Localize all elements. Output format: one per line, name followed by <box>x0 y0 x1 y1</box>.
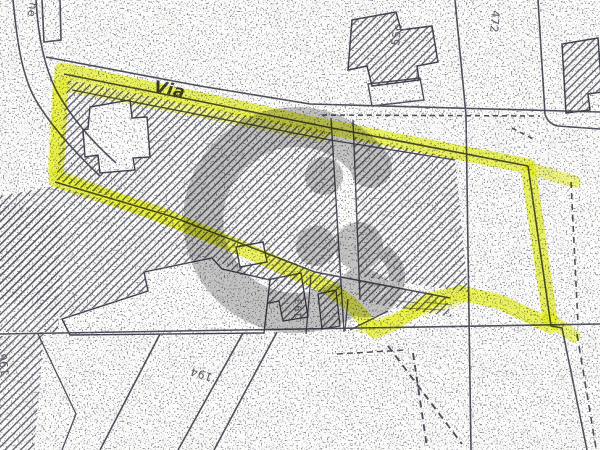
highlighter-left-fill <box>53 84 58 170</box>
map-canvas: Via 472 55c 193 194 196 ne <box>0 0 600 450</box>
scanned-cadastral-map: Via 472 55c 193 194 196 ne <box>0 0 600 450</box>
scan-noise <box>0 0 600 450</box>
